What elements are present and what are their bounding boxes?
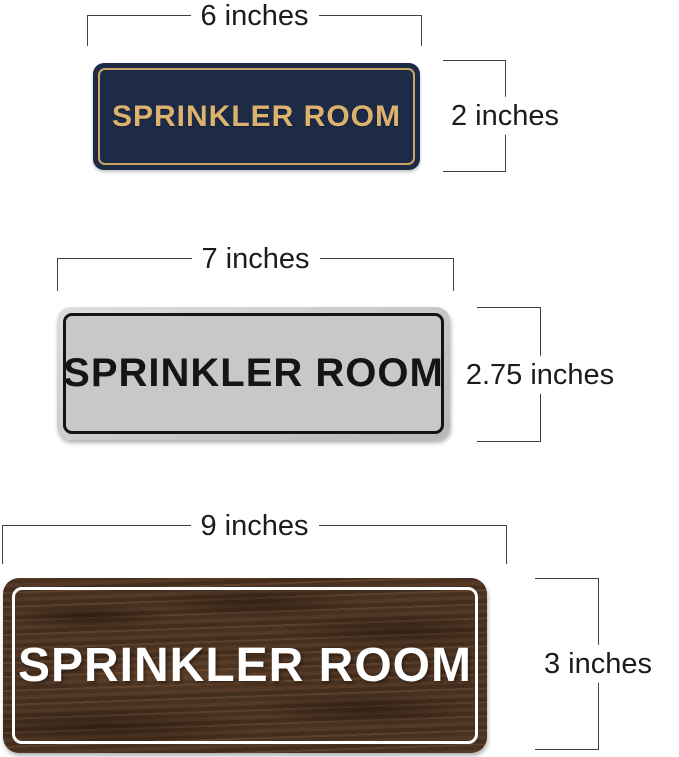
width-dimension-line-9in: 9 inches	[2, 525, 507, 564]
height-dimension-line-275in: 2.75 inches	[477, 307, 541, 442]
height-dimension-label: 2 inches	[443, 97, 567, 135]
width-dimension-label: 9 inches	[190, 510, 318, 542]
height-dimension-label: 3 inches	[536, 645, 660, 683]
sign-inner-border: SPRINKLER ROOM	[12, 587, 478, 744]
sprinkler-room-sign-silver: SPRINKLER ROOM	[57, 307, 450, 440]
sprinkler-room-sign-navy: SPRINKLER ROOM	[93, 63, 420, 170]
height-dimension-label: 2.75 inches	[458, 355, 622, 393]
sign-inner-border: SPRINKLER ROOM	[63, 313, 444, 434]
width-dimension-line-6in: 6 inches	[87, 15, 422, 46]
sign-size-comparison-image: 6 inches SPRINKLER ROOM 2 inches 7 inche…	[0, 0, 679, 757]
sprinkler-room-sign-wood: SPRINKLER ROOM	[3, 578, 487, 753]
width-dimension-line-7in: 7 inches	[57, 258, 454, 291]
sign-text: SPRINKLER ROOM	[112, 100, 401, 134]
height-dimension-line-2in: 2 inches	[443, 60, 506, 172]
height-dimension-line-3in: 3 inches	[535, 578, 599, 750]
width-dimension-label: 7 inches	[191, 243, 319, 275]
sign-text: SPRINKLER ROOM	[63, 351, 444, 396]
sign-text: SPRINKLER ROOM	[18, 638, 472, 693]
sign-inner-border: SPRINKLER ROOM	[98, 68, 415, 165]
width-dimension-label: 6 inches	[190, 0, 318, 32]
